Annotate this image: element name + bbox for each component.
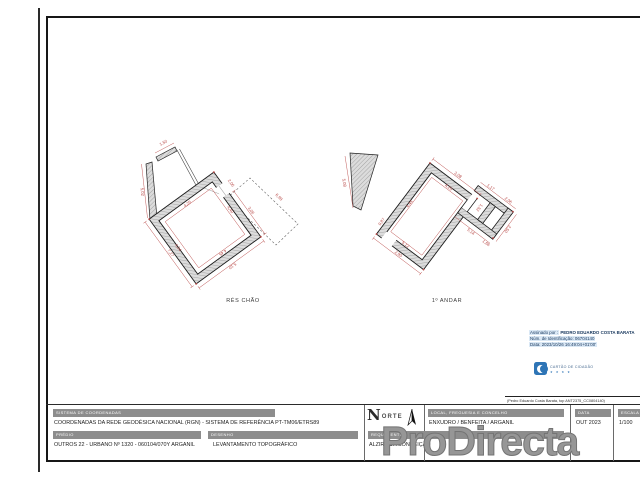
field-header-escala: ESCALA: [618, 409, 640, 417]
field-header-data: DATA: [575, 409, 611, 417]
signature-rule-line: [505, 396, 640, 397]
field-header-predio: PRÉDIO: [53, 431, 201, 439]
dimension-label: 5,02: [140, 188, 146, 197]
titleblock-divider: [364, 405, 365, 461]
titleblock-divider: [613, 405, 614, 461]
field-header-local: LOCAL, FREGUESIA E CONCELHO: [428, 409, 564, 417]
dimension-label: 5,08: [341, 178, 347, 187]
signature-line-date: Data: 2023/10/26 16:49:04+01'00': [529, 342, 637, 348]
funnel-edge-lines: [177, 149, 200, 187]
id-number-text: Núm. de Identificação: 06704140: [529, 336, 595, 341]
field-header-desenho: DESENHO: [208, 431, 358, 439]
cartao-cidadao-icon: [534, 362, 547, 375]
field-value-data: OUT 2023: [576, 420, 601, 426]
hatched-wedge: [350, 153, 378, 210]
main-wall-ring-group: 3,08 1,17 2,06 4,20 4,44 1,52 5,14 1,66 …: [367, 143, 525, 302]
signature-date-text: Data: 2023/10/26 16:49:04+01'00': [529, 342, 597, 347]
floorplan-res-chao: 1,50 5,02 6,98 4,40 4,45 4,34 4,25 7,27 …: [128, 134, 303, 306]
field-value-escala: 1/100: [619, 420, 633, 426]
field-value-sistema: COORDENADAS DA REDE GEODÉSICA NACIONAL (…: [54, 420, 319, 426]
dimension-label: 1,66: [481, 238, 491, 247]
dimension-label: 5,10: [227, 262, 237, 271]
drawing-sheet-page: { "sheet": { "watermark": "ProDirecta" }…: [0, 0, 640, 480]
norte-logo-n: N: [367, 408, 381, 423]
prodirecta-watermark: ProDirecta: [381, 418, 578, 465]
plan-label-res-chao: RÉS CHÃO: [198, 298, 288, 304]
field-header-sistema: SISTEMA DE COORDENADAS: [53, 409, 275, 417]
wall-ring: [149, 172, 261, 284]
field-value-predio: OUTROS 22 - URBANO Nº 1320 - 060104/070Y…: [54, 442, 195, 448]
dimension-label: 1,50: [159, 138, 169, 147]
page-margin-line: [38, 8, 40, 472]
signed-by-name: PEDRO EDUARDO COSTA BARATA: [560, 330, 634, 335]
field-value-desenho: LEVANTAMENTO TOPOGRÁFICO: [213, 442, 297, 448]
signed-by-label: Assinado por :: [529, 330, 559, 335]
plan-label-primeiro-andar: 1º ANDAR: [402, 298, 492, 304]
dimension-label: 1,52: [475, 203, 484, 213]
dimension-label: 2,50: [503, 224, 512, 234]
dimension-label: 6,98: [274, 192, 284, 202]
digital-signature-block: Assinado por : PEDRO EDUARDO COSTA BARAT…: [529, 330, 637, 348]
dimension-label: 2,06: [227, 178, 236, 188]
main-wall-ring-group: 4,40 4,45 4,34 4,25 7,27 5,10 3,06 2,06: [143, 165, 275, 295]
cartao-cidadao-logo: CARTÃO DE CIDADÃO ★ ★ ★ ★: [534, 362, 593, 375]
cartao-cidadao-label: CARTÃO DE CIDADÃO: [550, 365, 593, 369]
hatched-wall-funnel-top: [156, 147, 177, 161]
titleblock-top-border: [46, 404, 640, 405]
hatched-wall-funnel-left: [146, 162, 157, 220]
dimension-label: 5,14: [466, 227, 476, 236]
cartao-cidadao-stars: ★ ★ ★ ★: [550, 370, 593, 374]
signature-note: (Pedro Eduardo Costa Barata, top ANT2375…: [507, 399, 605, 403]
floorplan-primeiro-andar: 5,08 3,08 1,17 2,06 4,20 4,44 1,52 5,14 …: [330, 134, 535, 306]
